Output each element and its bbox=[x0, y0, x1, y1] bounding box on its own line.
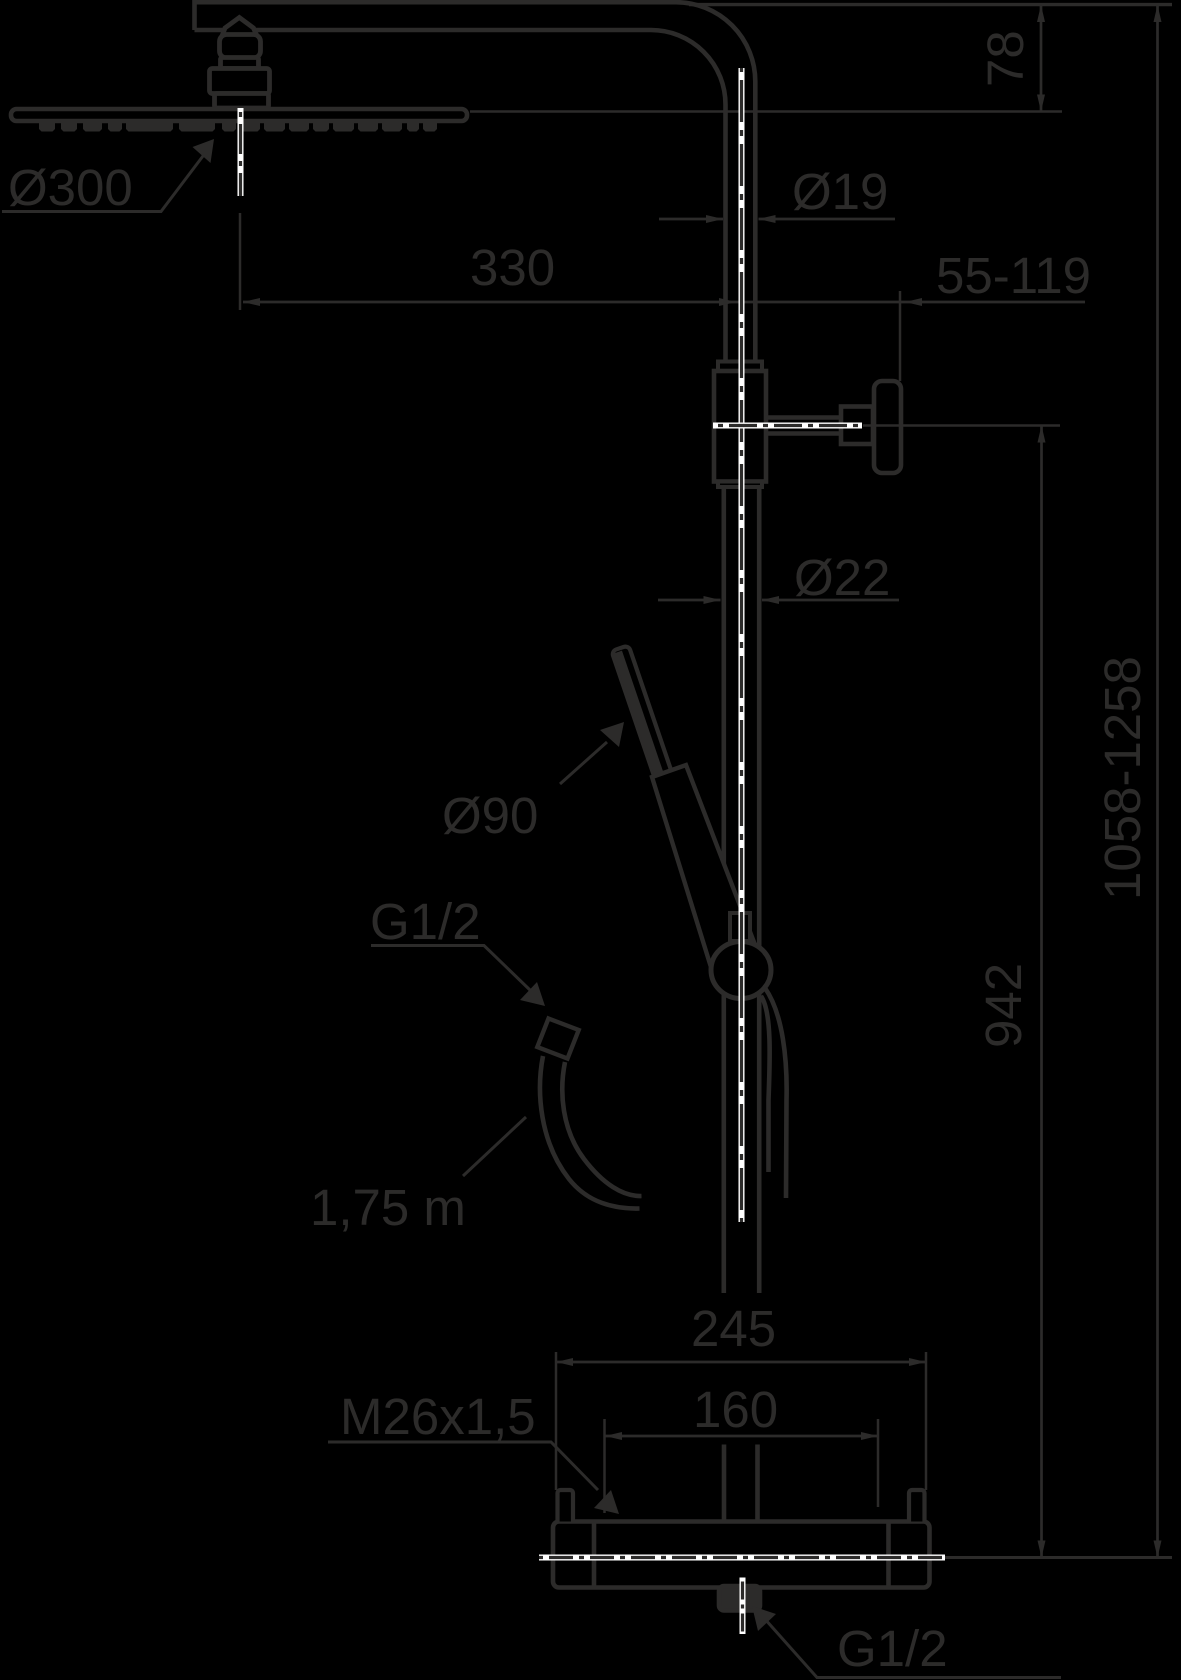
svg-text:M26x1,5: M26x1,5 bbox=[340, 1388, 536, 1445]
svg-text:1,75 m: 1,75 m bbox=[310, 1179, 466, 1236]
svg-text:G1/2: G1/2 bbox=[370, 893, 481, 950]
svg-text:Ø300: Ø300 bbox=[8, 159, 133, 216]
svg-text:Ø90: Ø90 bbox=[442, 787, 538, 844]
svg-text:330: 330 bbox=[470, 239, 555, 296]
svg-text:55-119: 55-119 bbox=[936, 247, 1091, 304]
svg-text:Ø19: Ø19 bbox=[792, 163, 888, 220]
svg-text:245: 245 bbox=[691, 1300, 776, 1357]
svg-text:160: 160 bbox=[693, 1381, 778, 1438]
svg-text:942: 942 bbox=[975, 963, 1032, 1048]
svg-text:78: 78 bbox=[977, 30, 1034, 87]
svg-text:Ø22: Ø22 bbox=[794, 549, 890, 606]
svg-text:G1/2: G1/2 bbox=[837, 1620, 948, 1677]
svg-text:1058-1258: 1058-1258 bbox=[1094, 656, 1151, 900]
